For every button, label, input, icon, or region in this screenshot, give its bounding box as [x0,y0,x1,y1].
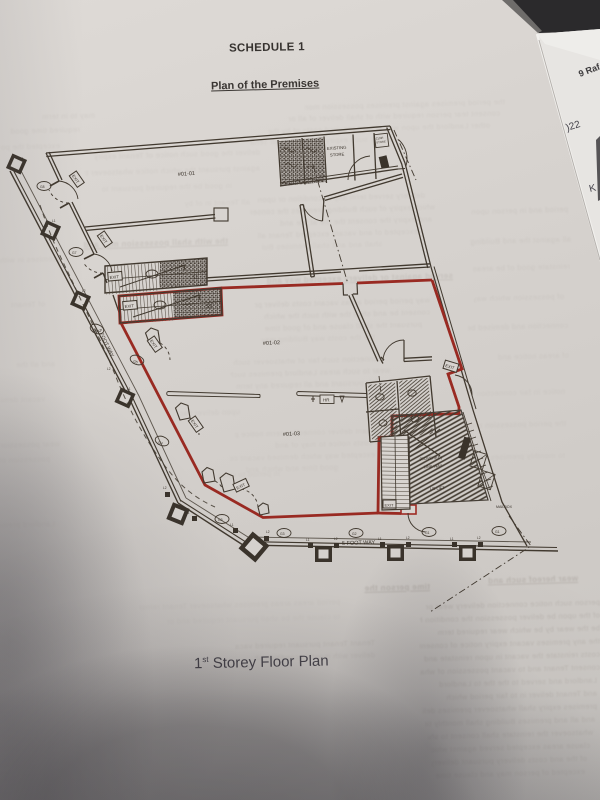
svg-text:G3: G3 [218,518,223,522]
svg-text:#01-03: #01-03 [283,431,300,438]
svg-text:L2: L2 [477,536,481,540]
svg-text:L1: L1 [127,387,131,391]
svg-text:5 FOOT WAY: 5 FOOT WAY [342,540,376,547]
svg-text:L2: L2 [266,530,270,534]
svg-text:L2: L2 [406,536,410,540]
svg-text:HR: HR [323,398,330,403]
svg-text:#01-02: #01-02 [263,340,280,347]
svg-text:MAILBOX: MAILBOX [496,505,513,509]
svg-text:EXIT: EXIT [109,274,119,280]
svg-text:EXISTING: EXISTING [327,145,347,151]
svg-text:L1: L1 [20,157,24,161]
svg-text:L2: L2 [334,537,338,541]
svg-text:L1: L1 [52,219,56,223]
svg-text:L2: L2 [107,367,111,371]
svg-text:#01-01: #01-01 [178,171,196,178]
svg-text:L1: L1 [306,538,310,542]
svg-text:STORE: STORE [330,151,345,157]
svg-text:G7: G7 [72,251,77,255]
svg-text:S1: S1 [192,275,198,281]
svg-text:EXIT: EXIT [124,303,134,309]
svg-text:L1: L1 [450,537,454,541]
svg-text:L1: L1 [186,511,190,515]
svg-text:EXIT: EXIT [385,503,394,508]
svg-text:G8: G8 [40,185,45,189]
svg-text:L1: L1 [378,537,382,541]
svg-text:G2: G2 [352,532,357,536]
svg-text:L2: L2 [163,486,167,490]
svg-text:G1: G1 [495,530,500,534]
svg-text:S2: S2 [206,304,212,310]
svg-text:L1: L1 [230,523,234,527]
svg-text:G1: G1 [425,531,430,535]
svg-text:STORE: STORE [376,139,386,144]
svg-text:G3: G3 [280,532,285,536]
svg-text:L2: L2 [82,289,86,293]
